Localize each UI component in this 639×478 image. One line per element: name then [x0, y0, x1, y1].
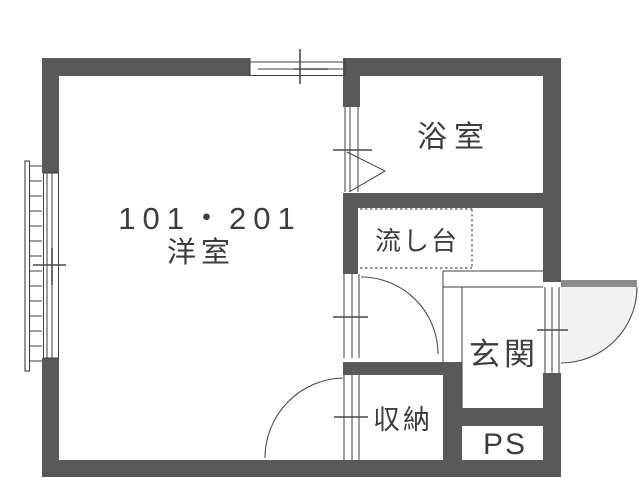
door-swing-arc — [265, 378, 343, 458]
front-door — [537, 280, 637, 373]
outer-wall-right-lower — [543, 373, 561, 477]
balcony-railing — [25, 161, 42, 371]
railing-rungs — [29, 166, 42, 361]
partition-wall-entrance-ps — [460, 408, 543, 426]
sink-label: 流し台 — [375, 226, 459, 256]
door-leaf — [561, 280, 637, 287]
partition-wall-bathroom-sink — [343, 193, 561, 208]
outer-wall-left-lower — [42, 358, 59, 477]
main-room-name-label: 洋室 — [167, 236, 235, 269]
hallway-door — [333, 274, 438, 358]
door-swing-arc — [361, 277, 438, 354]
outer-wall-right-upper — [543, 58, 561, 282]
outer-wall-bottom — [42, 460, 561, 477]
partition-wall-bathroom-left — [343, 58, 360, 107]
bathroom-folding-door — [333, 107, 385, 192]
closet-label: 収納 — [373, 405, 433, 435]
railing-outer-rail — [25, 161, 30, 371]
pipe-space-label: PS — [483, 428, 527, 461]
window-top — [250, 49, 345, 84]
window-left — [33, 173, 66, 358]
bathroom-label: 浴室 — [417, 121, 491, 154]
partition-wall-closet-top — [343, 362, 460, 375]
door-jamb-lines — [344, 274, 359, 358]
partition-wall-sink-left — [343, 193, 358, 274]
floor-plan-canvas: 101・201 洋室 浴室 流し台 玄関 収納 PS — [0, 0, 639, 478]
outer-wall-top-right — [345, 58, 561, 76]
partition-wall-closet-right — [443, 362, 462, 465]
folding-door-icon — [347, 152, 385, 192]
door-swing-area — [561, 287, 637, 363]
closet-door — [265, 375, 368, 460]
entrance-label: 玄関 — [469, 337, 539, 372]
main-room-number-label: 101・201 — [118, 201, 301, 236]
sliding-window-icon — [250, 58, 345, 76]
outer-wall-left-upper — [42, 58, 59, 173]
floor-plan-drawing: 101・201 洋室 浴室 流し台 玄関 収納 PS — [0, 0, 639, 478]
outer-wall-top-left — [42, 58, 250, 76]
